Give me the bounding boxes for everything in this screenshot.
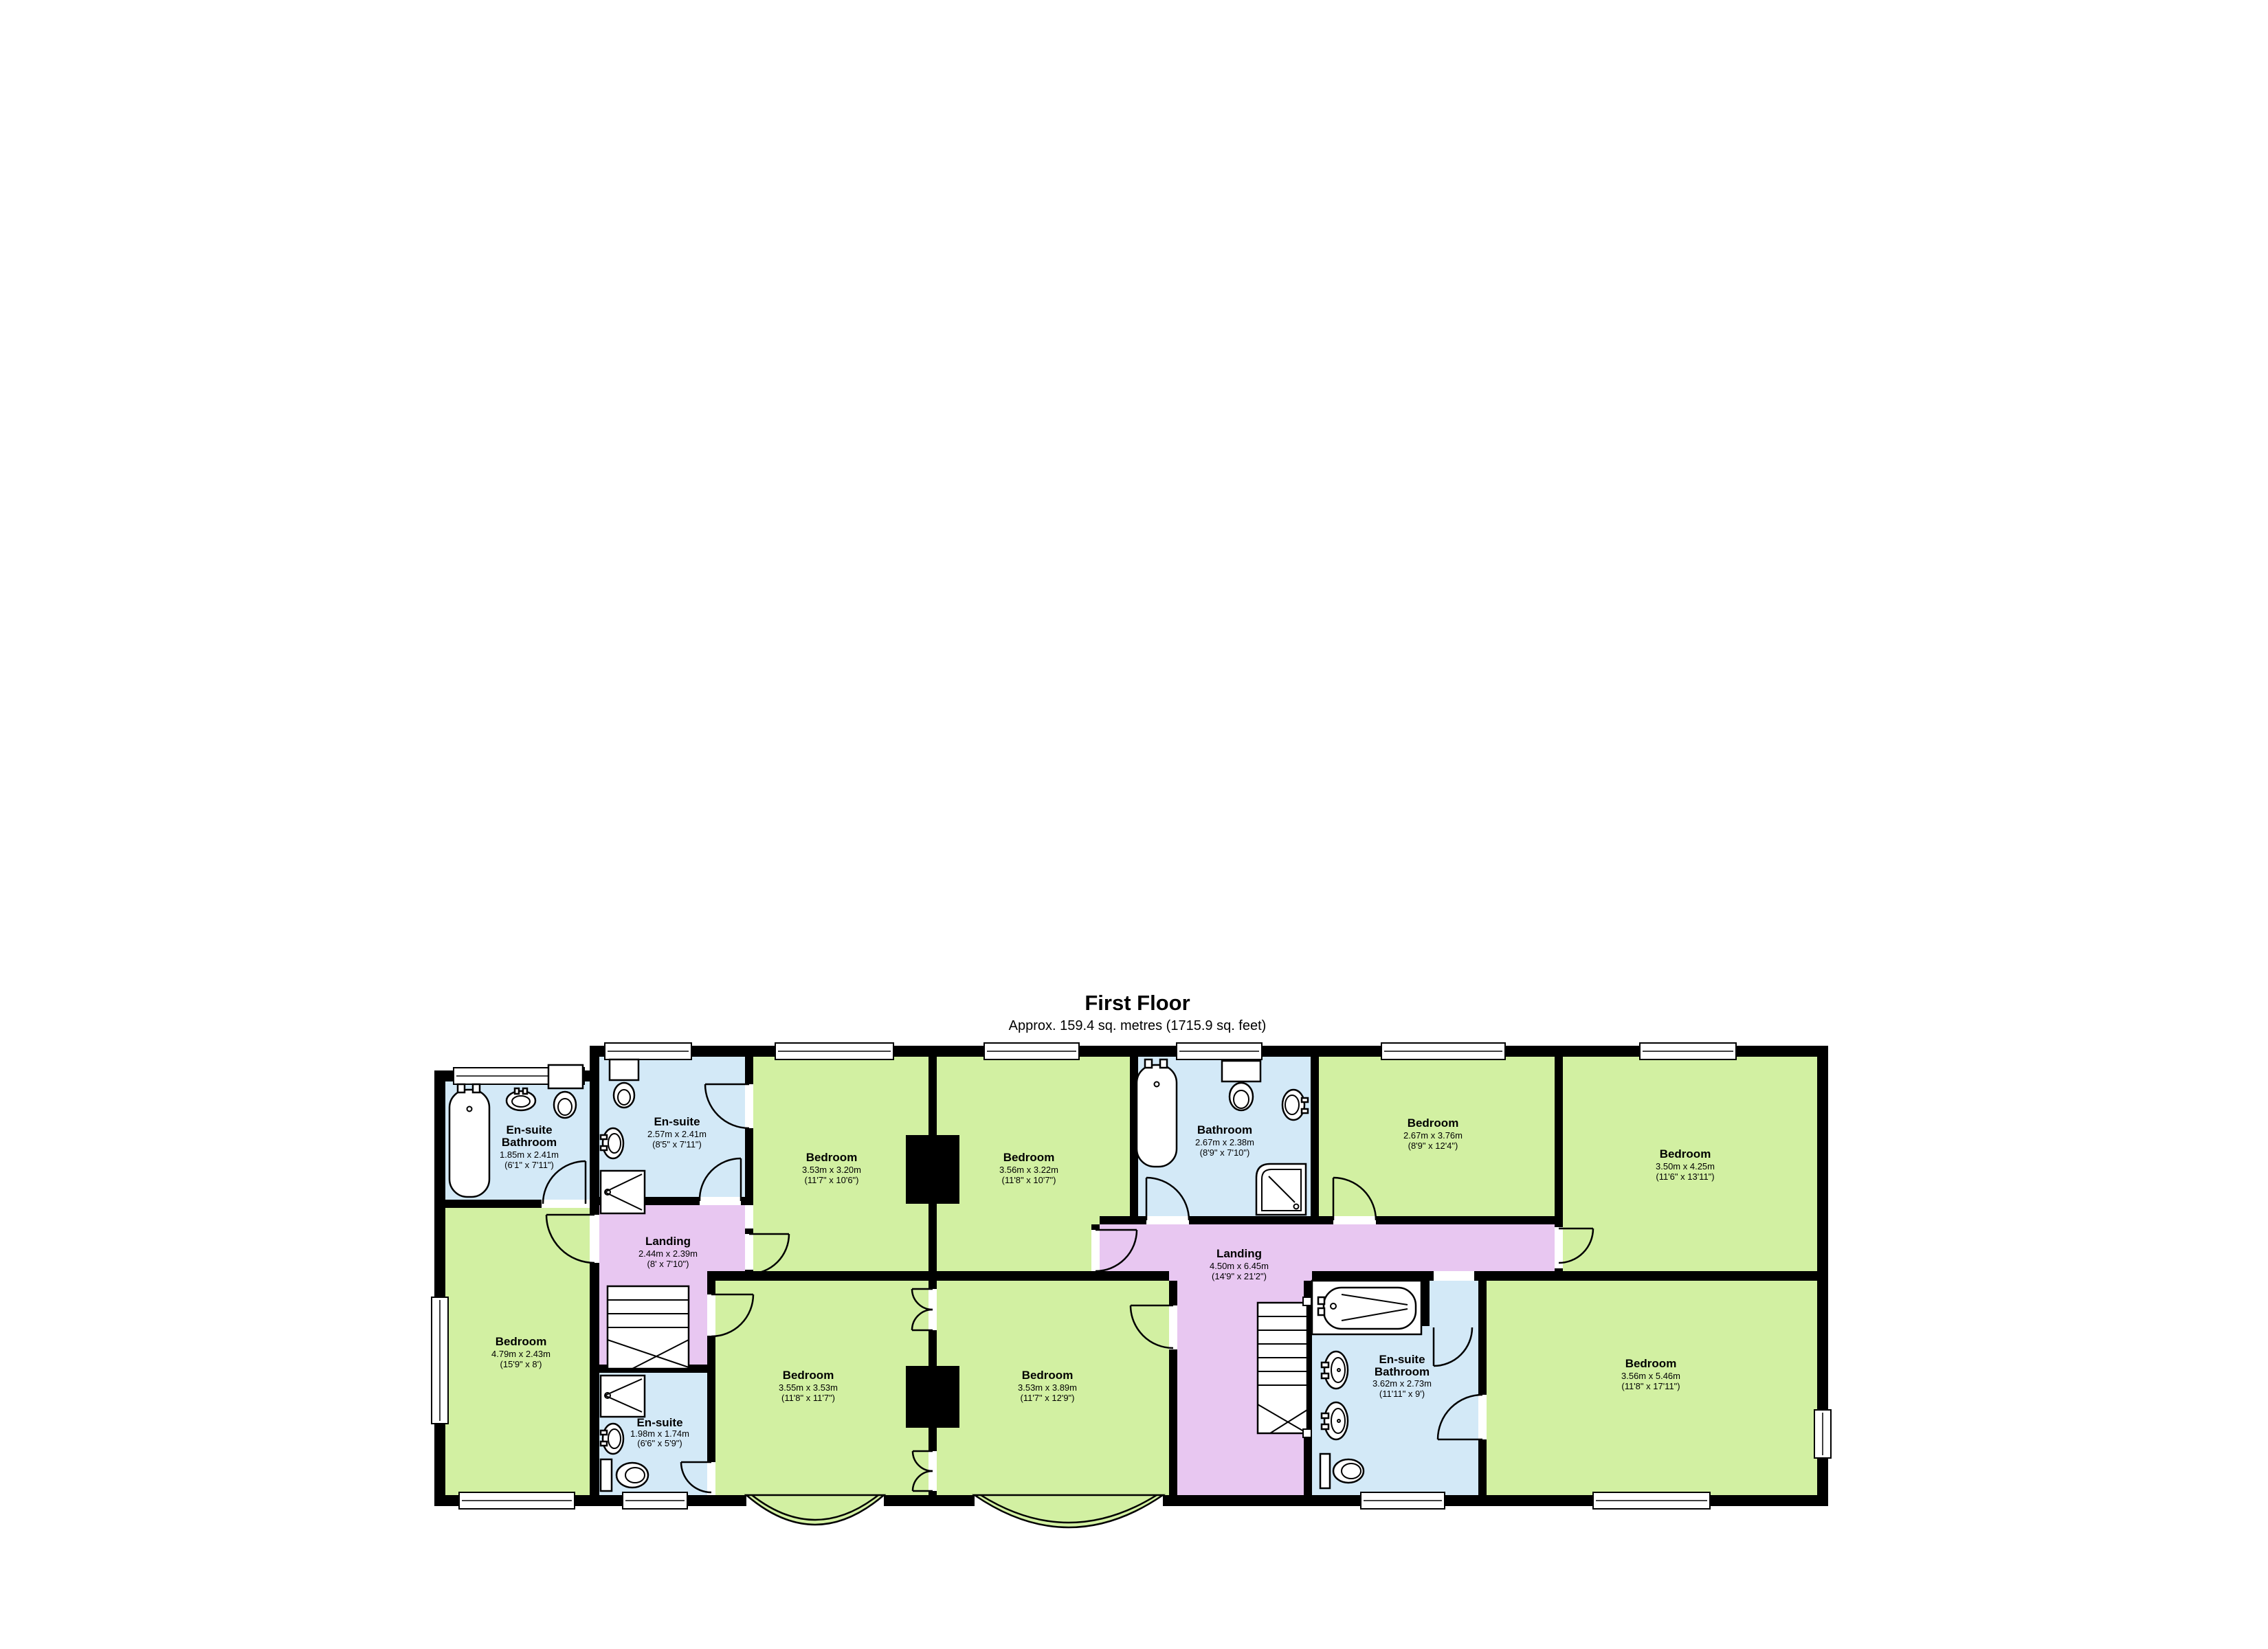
room-name: Bathroom bbox=[1197, 1123, 1252, 1136]
room-name: Bedroom bbox=[783, 1369, 834, 1382]
page-title: First Floor bbox=[1085, 991, 1190, 1015]
room-dimension-metric: 1.85m x 2.41m bbox=[500, 1149, 559, 1160]
window bbox=[1640, 1043, 1736, 1059]
window bbox=[984, 1043, 1079, 1059]
window bbox=[623, 1492, 687, 1509]
room-label-bedroom-bottom-right: Bedroom 3.56m x 5.46m (11'8" x 17'11") bbox=[1621, 1357, 1680, 1391]
staircase-small bbox=[608, 1286, 689, 1369]
room-name: Bedroom bbox=[1022, 1369, 1074, 1382]
window bbox=[459, 1492, 575, 1509]
bathtub bbox=[1137, 1059, 1177, 1167]
staircase-main bbox=[1258, 1297, 1311, 1437]
chimney-breast-top bbox=[906, 1135, 959, 1204]
room-label-bathroom: Bathroom 2.67m x 2.38m (8'9" x 7'10") bbox=[1195, 1123, 1254, 1158]
room-dimension-imperial: (11'8" x 17'11") bbox=[1621, 1381, 1680, 1391]
room-dimension-imperial: (11'8" x 11'7") bbox=[781, 1393, 835, 1403]
room-dimension-imperial: (11'6" x 13'11") bbox=[1656, 1171, 1714, 1182]
room-dimension-imperial: (8'9" x 7'10") bbox=[1200, 1147, 1250, 1158]
room-label-bedroom-top-3: Bedroom 2.67m x 3.76m (8'9" x 12'4") bbox=[1403, 1117, 1463, 1151]
room-dimension-imperial: (11'7" x 12'9") bbox=[1021, 1393, 1075, 1403]
room-dimension-metric: 2.67m x 2.38m bbox=[1195, 1137, 1254, 1147]
room-dimension-metric: 3.53m x 3.89m bbox=[1018, 1382, 1077, 1393]
room-dimension-metric: 2.67m x 3.76m bbox=[1403, 1130, 1463, 1141]
room-label-bedroom-bottom-2: Bedroom 3.53m x 3.89m (11'7" x 12'9") bbox=[1018, 1369, 1077, 1403]
room-name: Landing bbox=[1216, 1247, 1262, 1260]
room-dimension-metric: 4.50m x 6.45m bbox=[1210, 1261, 1269, 1271]
room-dimension-imperial: (14'9" x 21'2") bbox=[1212, 1271, 1267, 1281]
room-dimension-imperial: (11'8" x 10'7") bbox=[1002, 1175, 1056, 1185]
room-dimension-metric: 3.62m x 2.73m bbox=[1372, 1378, 1432, 1389]
window bbox=[1593, 1492, 1710, 1509]
room-name: En-suite bbox=[506, 1123, 552, 1136]
room-name: En-suite bbox=[654, 1115, 700, 1128]
room-name: En-suite bbox=[1379, 1353, 1425, 1366]
room-dimension-metric: 2.44m x 2.39m bbox=[638, 1248, 698, 1259]
room-label-bedroom-bottom-1: Bedroom 3.55m x 3.53m (11'8" x 11'7") bbox=[779, 1369, 838, 1403]
room-label-ensuite-small: En-suite 1.98m x 1.74m (6'6" x 5'9") bbox=[630, 1416, 689, 1448]
room-name: Landing bbox=[645, 1235, 691, 1248]
room-dimension-imperial: (8'9" x 12'4") bbox=[1408, 1141, 1458, 1151]
page-subtitle: Approx. 159.4 sq. metres (1715.9 sq. fee… bbox=[1009, 1018, 1267, 1033]
room-dimension-imperial: (8'5" x 7'11") bbox=[652, 1139, 702, 1149]
room-label-ensuite-bathroom-right: En-suite Bathroom 3.62m x 2.73m (11'11" … bbox=[1372, 1353, 1432, 1399]
room-name: Bathroom bbox=[502, 1136, 557, 1149]
room-label-landing-main: Landing 4.50m x 6.45m (14'9" x 21'2") bbox=[1210, 1247, 1269, 1281]
room-name: Bedroom bbox=[1003, 1151, 1055, 1164]
window bbox=[1361, 1492, 1445, 1509]
toilet bbox=[601, 1459, 648, 1491]
window bbox=[432, 1297, 448, 1424]
room-dimension-imperial: (15'9" x 8') bbox=[500, 1359, 542, 1369]
window bbox=[775, 1043, 893, 1059]
room-name: Bedroom bbox=[1408, 1117, 1459, 1130]
room-label-bedroom-top-2: Bedroom 3.56m x 3.22m (11'8" x 10'7") bbox=[999, 1151, 1058, 1185]
window bbox=[1177, 1043, 1262, 1059]
room-dimension-imperial: (6'6" x 5'9") bbox=[637, 1438, 682, 1448]
window bbox=[1814, 1410, 1831, 1458]
room-label-bedroom-top-right: Bedroom 3.50m x 4.25m (11'6" x 13'11") bbox=[1656, 1147, 1715, 1182]
bathtub bbox=[449, 1084, 489, 1197]
window bbox=[605, 1043, 691, 1059]
shower bbox=[601, 1171, 645, 1213]
room-dimension-metric: 2.57m x 2.41m bbox=[647, 1129, 707, 1139]
room-dimension-metric: 3.50m x 4.25m bbox=[1656, 1161, 1715, 1171]
room-dimension-metric: 3.55m x 3.53m bbox=[779, 1382, 838, 1393]
bathtub bbox=[1312, 1281, 1421, 1334]
room-name: Bathroom bbox=[1375, 1365, 1430, 1378]
room-dimension-metric: 1.98m x 1.74m bbox=[630, 1428, 689, 1439]
room-dimension-metric: 4.79m x 2.43m bbox=[491, 1349, 551, 1359]
room-dimension-metric: 3.53m x 3.20m bbox=[802, 1165, 861, 1175]
chimney-breast-bottom bbox=[906, 1366, 959, 1428]
shower bbox=[601, 1376, 645, 1417]
floor-plan-canvas: First Floor Approx. 159.4 sq. metres (17… bbox=[0, 0, 2268, 1649]
room-name: Bedroom bbox=[1660, 1147, 1711, 1160]
room-dimension-imperial: (8' x 7'10") bbox=[647, 1259, 689, 1269]
room-label-ensuite-bathroom-left: En-suite Bathroom 1.85m x 2.41m (6'1" x … bbox=[500, 1123, 559, 1170]
room-label-ensuite-top: En-suite 2.57m x 2.41m (8'5" x 7'11") bbox=[647, 1115, 707, 1149]
room-name: En-suite bbox=[636, 1416, 682, 1429]
room-name: Bedroom bbox=[496, 1335, 547, 1348]
room-dimension-metric: 3.56m x 3.22m bbox=[999, 1165, 1058, 1175]
window bbox=[1381, 1043, 1505, 1059]
room-dimension-imperial: (6'1" x 7'11") bbox=[504, 1160, 554, 1170]
room-label-bedroom-top-1: Bedroom 3.53m x 3.20m (11'7" x 10'6") bbox=[802, 1151, 861, 1185]
room-label-bedroom-left: Bedroom 4.79m x 2.43m (15'9" x 8') bbox=[491, 1335, 551, 1369]
room-name: Bedroom bbox=[806, 1151, 858, 1164]
room-dimension-metric: 3.56m x 5.46m bbox=[1621, 1371, 1680, 1381]
room-dimension-imperial: (11'11" x 9') bbox=[1379, 1389, 1425, 1399]
shower bbox=[1256, 1164, 1306, 1215]
room-name: Bedroom bbox=[1625, 1357, 1677, 1370]
room-dimension-imperial: (11'7" x 10'6") bbox=[805, 1175, 859, 1185]
room-label-landing-small: Landing 2.44m x 2.39m (8' x 7'10") bbox=[638, 1235, 698, 1269]
